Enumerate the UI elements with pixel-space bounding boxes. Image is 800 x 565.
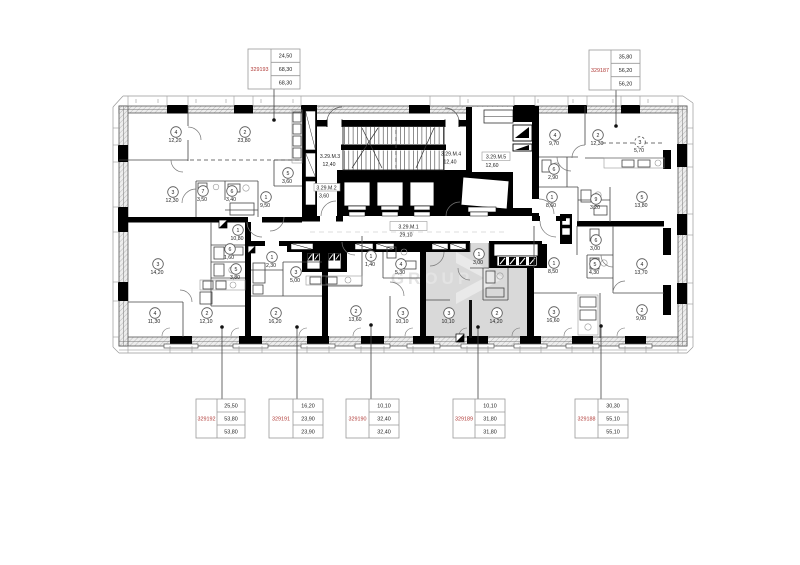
svg-text:1: 1	[370, 254, 373, 260]
svg-text:5,30: 5,30	[395, 270, 405, 276]
svg-text:11,30: 11,30	[148, 319, 161, 325]
svg-text:23,90: 23,90	[301, 430, 315, 436]
svg-text:55,10: 55,10	[606, 417, 620, 423]
svg-text:23,80: 23,80	[238, 138, 251, 144]
svg-text:1: 1	[265, 195, 268, 201]
svg-text:35,80: 35,80	[619, 55, 633, 61]
svg-text:4: 4	[641, 262, 644, 268]
svg-text:3,20: 3,20	[590, 205, 600, 211]
svg-text:329189: 329189	[455, 417, 473, 423]
svg-text:4: 4	[154, 311, 157, 317]
svg-text:5: 5	[594, 262, 597, 268]
svg-text:2: 2	[275, 311, 278, 317]
svg-text:3.29.М.4: 3.29.М.4	[441, 152, 461, 158]
svg-text:16,20: 16,20	[301, 404, 315, 410]
svg-text:3,00: 3,00	[590, 246, 600, 252]
svg-text:12,10: 12,10	[200, 319, 213, 325]
svg-text:3: 3	[639, 140, 642, 146]
svg-text:10,10: 10,10	[396, 319, 409, 325]
svg-text:329191: 329191	[272, 417, 290, 423]
svg-text:329187: 329187	[591, 68, 609, 74]
svg-text:9: 9	[595, 197, 598, 203]
svg-text:5,70: 5,70	[634, 148, 644, 154]
svg-text:8,60: 8,60	[546, 203, 556, 209]
svg-text:3.29.М.5: 3.29.М.5	[486, 155, 506, 161]
svg-text:68,30: 68,30	[279, 67, 293, 73]
svg-text:12,60: 12,60	[486, 163, 499, 169]
svg-text:16,60: 16,60	[547, 318, 560, 324]
svg-text:3,00: 3,00	[473, 260, 483, 266]
svg-text:329190: 329190	[349, 417, 367, 423]
svg-text:32,40: 32,40	[377, 430, 391, 436]
svg-text:6: 6	[229, 247, 232, 253]
svg-text:2: 2	[206, 311, 209, 317]
svg-text:12,40: 12,40	[444, 160, 457, 166]
svg-text:4: 4	[175, 130, 178, 136]
svg-text:3,60: 3,60	[319, 194, 329, 200]
svg-text:12,30: 12,30	[166, 198, 179, 204]
svg-text:9,70: 9,70	[549, 141, 559, 147]
svg-text:1: 1	[551, 195, 554, 201]
svg-text:31,80: 31,80	[483, 430, 497, 436]
svg-text:5: 5	[641, 195, 644, 201]
svg-text:3,50: 3,50	[197, 197, 207, 203]
svg-text:12,40: 12,40	[323, 162, 336, 168]
svg-text:3: 3	[157, 262, 160, 268]
svg-text:13,80: 13,80	[635, 203, 648, 209]
svg-text:31,80: 31,80	[483, 417, 497, 423]
svg-text:1: 1	[237, 228, 240, 234]
svg-text:3: 3	[553, 310, 556, 316]
svg-text:2: 2	[355, 309, 358, 315]
svg-text:53,80: 53,80	[224, 430, 238, 436]
svg-text:1,40: 1,40	[365, 262, 375, 268]
svg-text:23,90: 23,90	[301, 417, 315, 423]
svg-text:4,30: 4,30	[589, 270, 599, 276]
svg-text:14,20: 14,20	[151, 270, 164, 276]
svg-text:3: 3	[172, 190, 175, 196]
svg-text:29,10: 29,10	[400, 233, 413, 239]
svg-text:32,40: 32,40	[377, 417, 391, 423]
svg-text:10,80: 10,80	[231, 236, 244, 242]
svg-text:3.29.М.2: 3.29.М.2	[316, 186, 336, 192]
svg-text:5,00: 5,00	[290, 278, 300, 284]
svg-text:2: 2	[641, 308, 644, 314]
svg-text:68,30: 68,30	[279, 80, 293, 86]
svg-text:56,20: 56,20	[619, 68, 633, 74]
svg-text:2,90: 2,90	[548, 175, 558, 181]
svg-text:2: 2	[244, 130, 247, 136]
svg-text:3.29.М.1: 3.29.М.1	[398, 225, 418, 231]
svg-text:3: 3	[402, 311, 405, 317]
svg-text:24,50: 24,50	[279, 54, 293, 60]
svg-text:4: 4	[554, 133, 557, 139]
svg-text:2,30: 2,30	[266, 263, 276, 269]
svg-text:3,60: 3,60	[282, 179, 292, 185]
svg-text:2: 2	[597, 133, 600, 139]
svg-text:329192: 329192	[198, 417, 216, 423]
svg-text:13,70: 13,70	[635, 270, 648, 276]
svg-text:12,30: 12,30	[591, 141, 604, 147]
svg-text:13,60: 13,60	[349, 317, 362, 323]
svg-text:3.29.М.3: 3.29.М.3	[320, 154, 340, 160]
svg-text:25,50: 25,50	[224, 404, 238, 410]
svg-text:10,10: 10,10	[483, 404, 497, 410]
svg-text:1,60: 1,60	[224, 255, 234, 261]
svg-text:3: 3	[295, 270, 298, 276]
svg-text:8,50: 8,50	[548, 269, 558, 275]
svg-text:1: 1	[271, 255, 274, 261]
svg-text:6: 6	[595, 238, 598, 244]
svg-text:5: 5	[287, 171, 290, 177]
svg-text:12,20: 12,20	[169, 138, 182, 144]
svg-text:1: 1	[553, 261, 556, 267]
svg-text:1: 1	[478, 252, 481, 258]
svg-text:10,10: 10,10	[377, 404, 391, 410]
svg-text:3: 3	[448, 311, 451, 317]
svg-text:30,30: 30,30	[606, 404, 620, 410]
svg-text:329193: 329193	[251, 67, 269, 73]
svg-text:14,20: 14,20	[490, 319, 503, 325]
svg-text:16,20: 16,20	[269, 319, 282, 325]
svg-text:7: 7	[202, 189, 205, 195]
svg-text:2: 2	[496, 311, 499, 317]
svg-text:55,10: 55,10	[606, 430, 620, 436]
svg-text:53,80: 53,80	[224, 417, 238, 423]
svg-text:5: 5	[235, 267, 238, 273]
svg-text:10,10: 10,10	[442, 319, 455, 325]
svg-text:9,00: 9,00	[636, 316, 646, 322]
svg-text:6: 6	[231, 189, 234, 195]
svg-text:3,80: 3,80	[230, 275, 240, 281]
svg-text:9,50: 9,50	[260, 203, 270, 209]
svg-text:329188: 329188	[578, 417, 596, 423]
svg-text:4: 4	[400, 262, 403, 268]
svg-text:3,40: 3,40	[226, 197, 236, 203]
svg-text:6: 6	[553, 167, 556, 173]
svg-text:56,20: 56,20	[619, 81, 633, 87]
